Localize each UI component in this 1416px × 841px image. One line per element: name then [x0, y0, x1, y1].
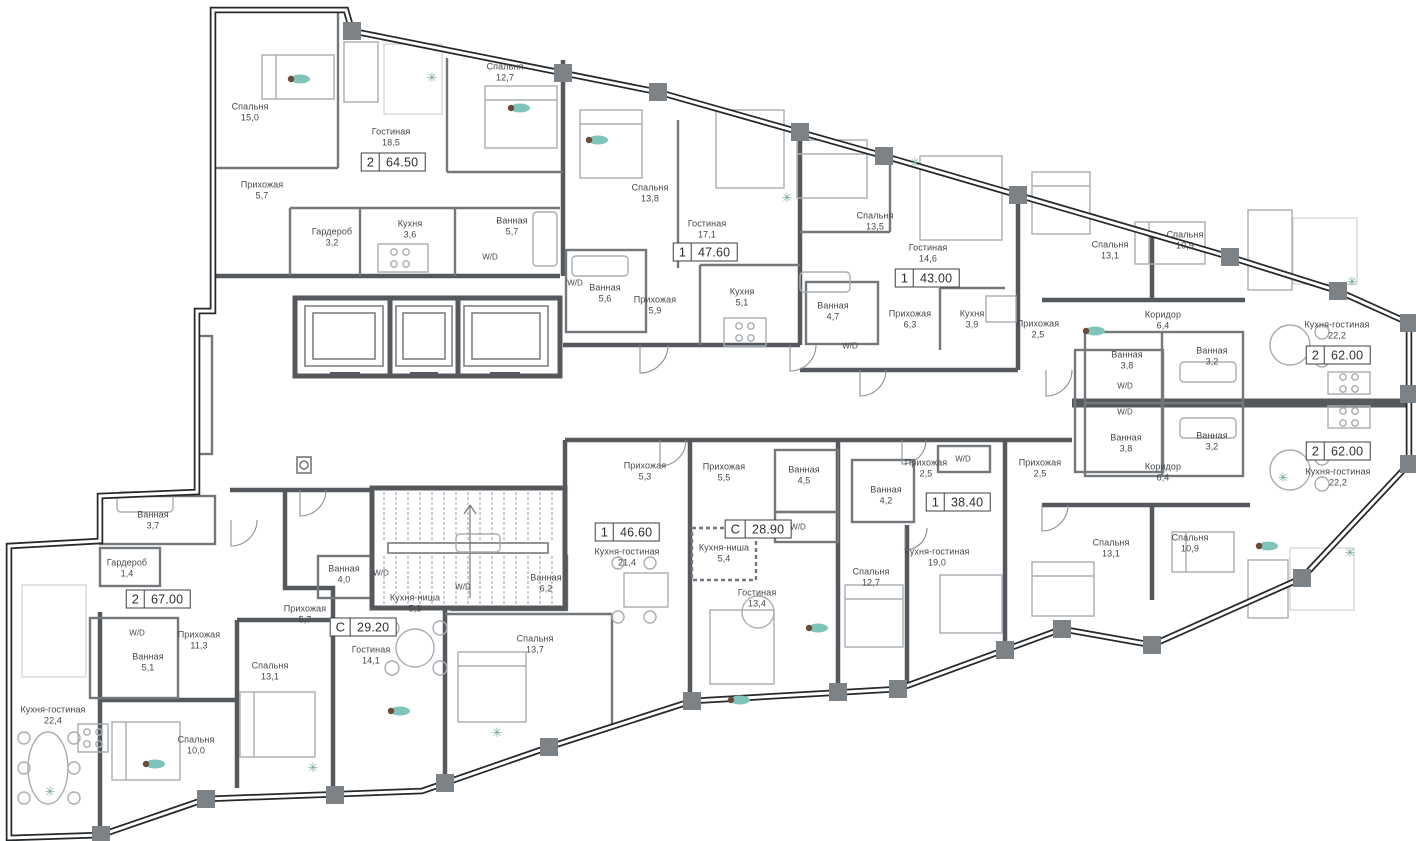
plant-icon: ✳	[1347, 274, 1358, 289]
facade-pier	[889, 680, 907, 698]
facade-pier	[829, 683, 847, 701]
floor-plan-drawing: ✳✳✳✳✳✳✳✳✳	[0, 0, 1416, 841]
plant-icon: ✳	[492, 725, 503, 740]
plant-icon: ✳	[1278, 470, 1289, 485]
plant-icon: ✳	[782, 190, 793, 205]
facade-pier	[1009, 186, 1027, 204]
facade-pier	[326, 786, 344, 804]
facade-pier	[1143, 636, 1161, 654]
facade-pier	[1400, 314, 1416, 332]
facade-pier	[1221, 248, 1239, 266]
facade-pier	[92, 826, 110, 841]
facade-pier	[1053, 620, 1071, 638]
plant-icon: ✳	[427, 70, 438, 85]
floor-plan: ✳✳✳✳✳✳✳✳✳ Спальня15,0Спальня12,7Гостиная…	[0, 0, 1416, 841]
facade-pier	[1329, 282, 1347, 300]
plant-icon: ✳	[308, 760, 319, 775]
facade-pier	[996, 641, 1014, 659]
person-head	[508, 105, 514, 111]
facade-pier	[554, 64, 572, 82]
plant-icon: ✳	[1345, 545, 1356, 560]
facade-pier	[791, 123, 809, 141]
facade-pier	[343, 22, 361, 40]
person-head	[143, 761, 149, 767]
stairwell	[372, 488, 565, 608]
person-head	[806, 625, 812, 631]
person-head	[728, 697, 734, 703]
person-head	[388, 708, 394, 714]
facade-pier	[649, 83, 667, 101]
plant-icon: ✳	[45, 784, 56, 799]
facade-pier	[875, 147, 893, 165]
facade-pier	[1400, 455, 1416, 473]
facade-pier	[197, 790, 215, 808]
elevator-doors	[330, 372, 520, 378]
person-head	[1083, 328, 1089, 334]
facade-pier	[436, 774, 454, 792]
person-head	[586, 137, 592, 143]
person-head	[288, 76, 294, 82]
facade-pier	[1400, 385, 1416, 403]
person-head	[1256, 543, 1262, 549]
plant-icon: ✳	[910, 155, 921, 170]
elevator-bank	[295, 298, 560, 378]
facade-pier	[1293, 569, 1311, 587]
facade-pier	[540, 738, 558, 756]
facade-pier	[683, 692, 701, 710]
building-footprint	[9, 10, 1409, 838]
